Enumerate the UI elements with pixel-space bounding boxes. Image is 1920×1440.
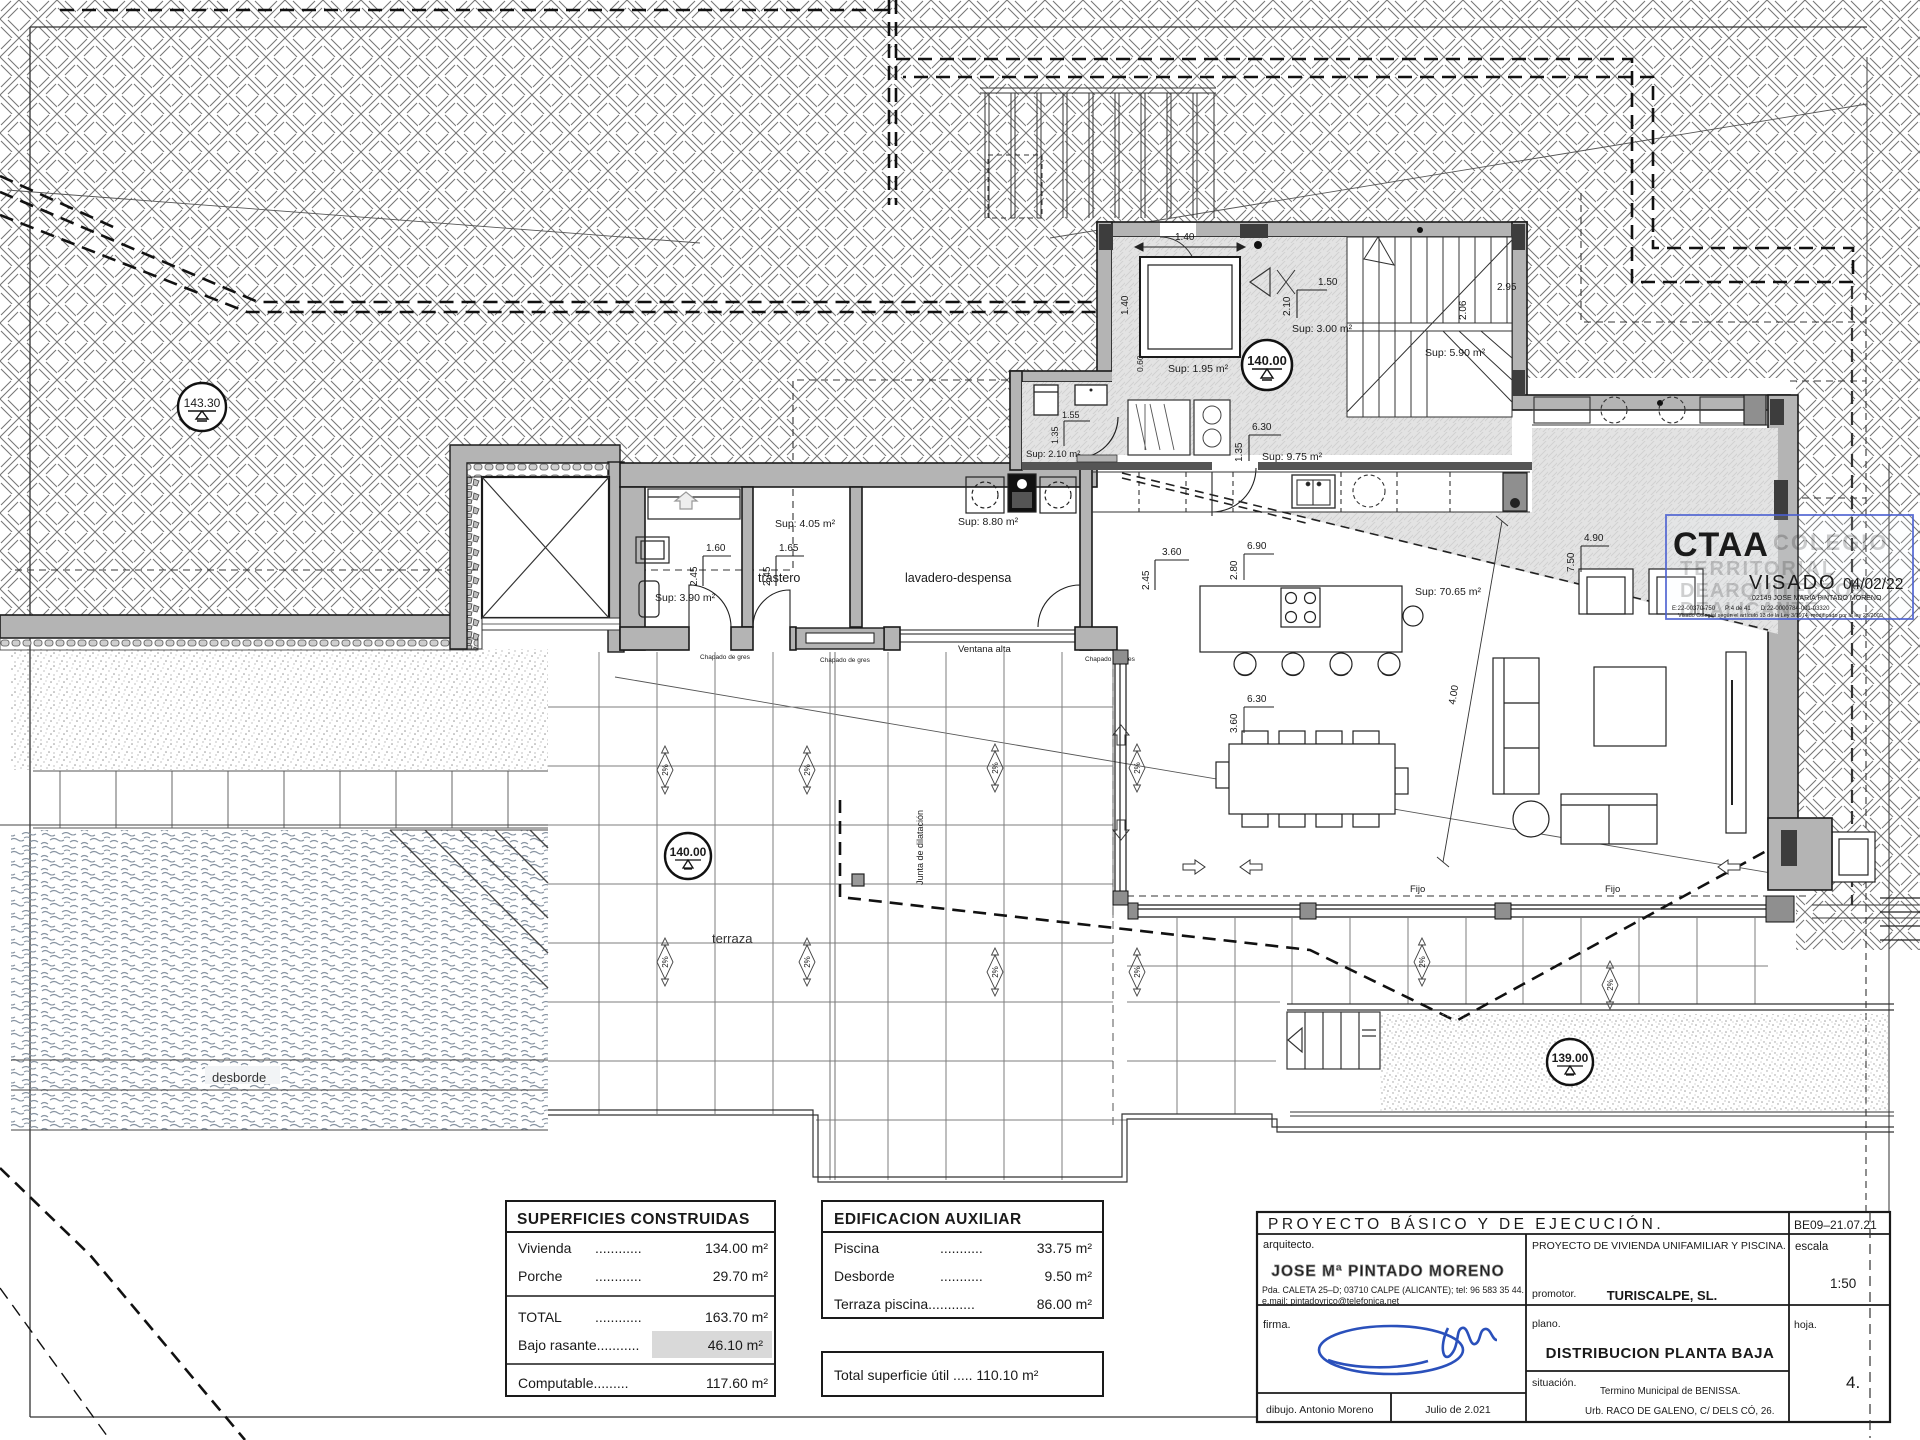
svg-text:0.60: 0.60 <box>1135 355 1145 372</box>
svg-text:Termino Municipal de BENISS: Termino Municipal de BENISSA. <box>1600 1386 1740 1397</box>
svg-text:143.30: 143.30 <box>184 396 221 410</box>
svg-text:2%: 2% <box>1133 762 1142 774</box>
svg-text:...........: ........... <box>940 1268 983 1284</box>
svg-text:2.80: 2.80 <box>1229 560 1240 580</box>
svg-text:Junta de dilatación: Junta de dilatación <box>915 810 925 885</box>
svg-text:EDIFICACION AUXILIAR: EDIFICACION AUXILIAR <box>834 1211 1022 1228</box>
svg-text:Total superficie útil ..... 11: Total superficie útil ..... 110.10 m² <box>834 1367 1039 1383</box>
svg-text:............: ............ <box>595 1309 642 1325</box>
svg-text:4.: 4. <box>1846 1373 1860 1392</box>
svg-text:6.30: 6.30 <box>1252 422 1272 433</box>
svg-text:33.75 m²: 33.75 m² <box>1037 1240 1093 1256</box>
svg-text:2%: 2% <box>991 966 1000 978</box>
svg-text:02149 JOSE MARIA PINTADO MOREN: 02149 JOSE MARIA PINTADO MORENO <box>1752 595 1882 602</box>
svg-text:1.60: 1.60 <box>706 543 726 554</box>
svg-text:6.90: 6.90 <box>1247 541 1267 552</box>
svg-text:TOTAL: TOTAL <box>518 1309 562 1325</box>
svg-text:117.60 m²: 117.60 m² <box>706 1375 768 1391</box>
svg-text:TURISCALPE, SL.: TURISCALPE, SL. <box>1607 1288 1718 1303</box>
svg-text:Bajo rasante...........: Bajo rasante........... <box>518 1337 639 1353</box>
svg-text:139.00: 139.00 <box>1552 1051 1589 1065</box>
svg-text:134.00 m²: 134.00 m² <box>705 1240 768 1256</box>
svg-text:Fijo: Fijo <box>1605 884 1620 895</box>
svg-text:Chapado de gres: Chapado de gres <box>820 657 871 664</box>
svg-text:e.mail: pintadoyrico@telefoni: e.mail: pintadoyrico@telefonica.net <box>1262 1296 1400 1306</box>
svg-text:86.00 m²: 86.00 m² <box>1037 1296 1093 1312</box>
svg-text:plano.: plano. <box>1532 1318 1561 1330</box>
svg-text:1.35: 1.35 <box>1050 426 1060 444</box>
svg-text:3.60: 3.60 <box>1229 713 1240 733</box>
svg-text:Urb. RACO DE GALENO, C/ D: Urb. RACO DE GALENO, C/ DELS CÓ, 26. <box>1585 1406 1774 1417</box>
svg-text:terraza: terraza <box>712 931 753 946</box>
svg-text:2%: 2% <box>991 762 1000 774</box>
svg-text:Terraza piscina............: Terraza piscina............ <box>834 1296 975 1312</box>
svg-text:2%: 2% <box>661 764 670 776</box>
svg-text:PROYECTO DE VIVIENDA UNIFAM: PROYECTO DE VIVIENDA UNIFAMILIAR Y PISCI… <box>1532 1240 1786 1252</box>
svg-text:Ventana alta: Ventana alta <box>958 644 1012 655</box>
svg-text:............: ............ <box>595 1240 642 1256</box>
svg-text:1:50: 1:50 <box>1830 1276 1856 1291</box>
svg-text:1.40: 1.40 <box>1175 232 1195 243</box>
svg-text:2.45: 2.45 <box>1141 570 1152 590</box>
svg-text:Sup: 70.65 m²: Sup: 70.65 m² <box>1415 586 1481 598</box>
svg-text:2.45: 2.45 <box>689 566 700 586</box>
svg-text:lavadero-despensa: lavadero-despensa <box>905 571 1011 585</box>
svg-text:4.90: 4.90 <box>1584 533 1604 544</box>
svg-text:escala: escala <box>1795 1241 1829 1253</box>
svg-text:DISTRIBUCION PLANTA BAJA: DISTRIBUCION PLANTA BAJA <box>1546 1345 1775 1362</box>
svg-text:Chapado de gres: Chapado de gres <box>700 654 751 661</box>
svg-text:PROYECTO BÁSICO Y DE EJECU: PROYECTO BÁSICO Y DE EJECUCIÓN. <box>1268 1216 1664 1233</box>
svg-text:Porche: Porche <box>518 1268 563 1284</box>
svg-text:desborde: desborde <box>212 1070 266 1085</box>
svg-text:firma.: firma. <box>1263 1319 1291 1331</box>
svg-text:29.70 m²: 29.70 m² <box>713 1268 769 1284</box>
svg-text:arquitecto.: arquitecto. <box>1263 1239 1314 1251</box>
svg-text:Sup: 3.90 m²: Sup: 3.90 m² <box>655 592 716 604</box>
svg-text:Piscina: Piscina <box>834 1240 879 1256</box>
svg-text:2.45: 2.45 <box>762 566 773 586</box>
svg-text:140.00: 140.00 <box>1247 353 1287 368</box>
svg-text:Sup: 1.95 m²: Sup: 1.95 m² <box>1168 363 1229 375</box>
svg-text:04/02/22: 04/02/22 <box>1843 576 1903 593</box>
svg-text:9.50 m²: 9.50 m² <box>1045 1268 1093 1284</box>
svg-text:JOSE Mª PINTADO MORENO: JOSE Mª PINTADO MORENO <box>1271 1263 1504 1280</box>
svg-text:Computable.........: Computable......... <box>518 1375 629 1391</box>
svg-text:1.50: 1.50 <box>1318 277 1338 288</box>
svg-text:VISADO: VISADO <box>1749 572 1837 594</box>
svg-text:Pda. CALETA 25–D; 03710 CA: Pda. CALETA 25–D; 03710 CALPE (ALICANTE)… <box>1262 1285 1524 1295</box>
svg-text:............: ............ <box>595 1268 642 1284</box>
svg-text:Fijo: Fijo <box>1410 884 1425 895</box>
svg-text:2.06: 2.06 <box>1458 300 1469 320</box>
svg-text:Desborde: Desborde <box>834 1268 895 1284</box>
svg-text:46.10 m²: 46.10 m² <box>708 1337 764 1353</box>
svg-text:2%: 2% <box>1606 979 1615 991</box>
svg-text:hoja.: hoja. <box>1794 1319 1817 1331</box>
svg-text:140.00: 140.00 <box>670 845 707 859</box>
svg-text:2.10: 2.10 <box>1282 296 1293 316</box>
svg-text:7.50: 7.50 <box>1566 552 1577 572</box>
svg-text:Sup: 8.80 m²: Sup: 8.80 m² <box>958 516 1019 528</box>
svg-text:Visado Colegial según el artíc: Visado Colegial según el artículo 13 de … <box>1678 613 1883 619</box>
svg-text:E:22-00370-750 P:4 de 41: E:22-00370-750 P:4 de 41 D:22-0000784-00… <box>1672 606 1830 612</box>
svg-text:Julio de 2.021: Julio de 2.021 <box>1425 1404 1491 1416</box>
svg-text:6.30: 6.30 <box>1247 694 1267 705</box>
svg-text:2.95: 2.95 <box>1497 282 1517 293</box>
svg-text:Sup: 9.75 m²: Sup: 9.75 m² <box>1262 451 1323 463</box>
svg-text:Vivienda: Vivienda <box>518 1240 572 1256</box>
svg-text:1.55: 1.55 <box>1062 410 1080 420</box>
svg-text:1.65: 1.65 <box>779 543 799 554</box>
svg-text:2%: 2% <box>803 764 812 776</box>
svg-text:163.70 m²: 163.70 m² <box>705 1309 768 1325</box>
svg-text:...........: ........... <box>940 1240 983 1256</box>
svg-text:2%: 2% <box>661 956 670 968</box>
svg-text:promotor.: promotor. <box>1532 1288 1576 1300</box>
svg-text:2%: 2% <box>803 956 812 968</box>
svg-text:COLEGIO: COLEGIO <box>1773 530 1888 555</box>
svg-text:SUPERFICIES CONSTRUIDAS: SUPERFICIES CONSTRUIDAS <box>517 1211 750 1228</box>
svg-text:1.40: 1.40 <box>1120 295 1131 315</box>
svg-text:1.35: 1.35 <box>1234 442 1245 462</box>
svg-text:dibujo. Antonio Moreno: dibujo. Antonio Moreno <box>1266 1404 1374 1416</box>
svg-text:Sup: 4.05 m²: Sup: 4.05 m² <box>775 518 836 530</box>
svg-text:2%: 2% <box>1133 966 1142 978</box>
svg-text:Sup: 5.90 m²: Sup: 5.90 m² <box>1425 347 1486 359</box>
svg-text:2%: 2% <box>1418 956 1427 968</box>
svg-text:3.60: 3.60 <box>1162 547 1182 558</box>
svg-text:BE09–21.07.21: BE09–21.07.21 <box>1794 1218 1877 1232</box>
svg-text:Sup: 3.00 m²: Sup: 3.00 m² <box>1292 323 1353 335</box>
svg-text:situación.: situación. <box>1532 1377 1576 1389</box>
svg-text:Sup: 2.10 m²: Sup: 2.10 m² <box>1026 449 1080 460</box>
